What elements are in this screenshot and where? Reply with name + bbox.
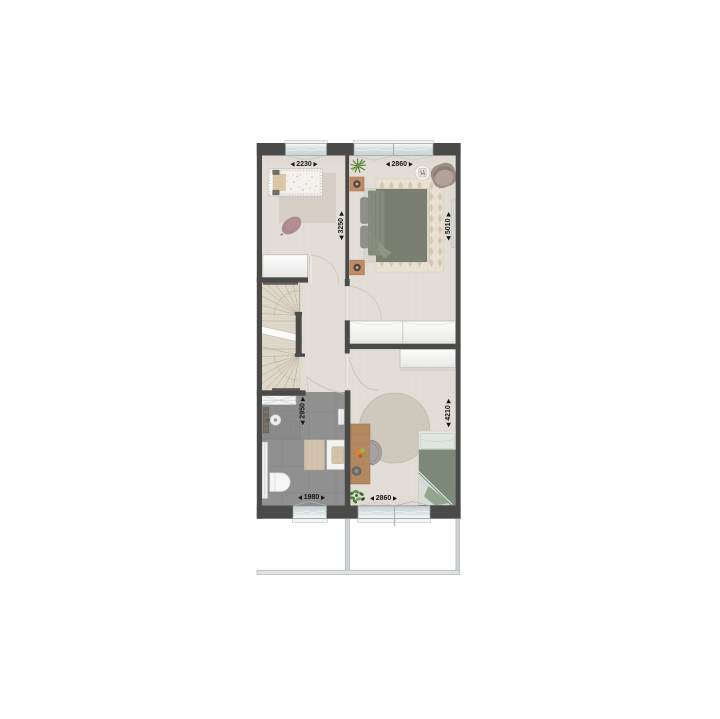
svg-text:2950: 2950 [299, 403, 306, 419]
svg-text:2860: 2860 [376, 495, 392, 502]
svg-text:5010: 5010 [445, 218, 452, 234]
svg-text:3250: 3250 [338, 218, 345, 234]
svg-text:4210: 4210 [445, 405, 452, 421]
svg-text:2860: 2860 [392, 161, 408, 168]
svg-text:1980: 1980 [304, 494, 320, 501]
svg-text:2230: 2230 [296, 161, 312, 168]
